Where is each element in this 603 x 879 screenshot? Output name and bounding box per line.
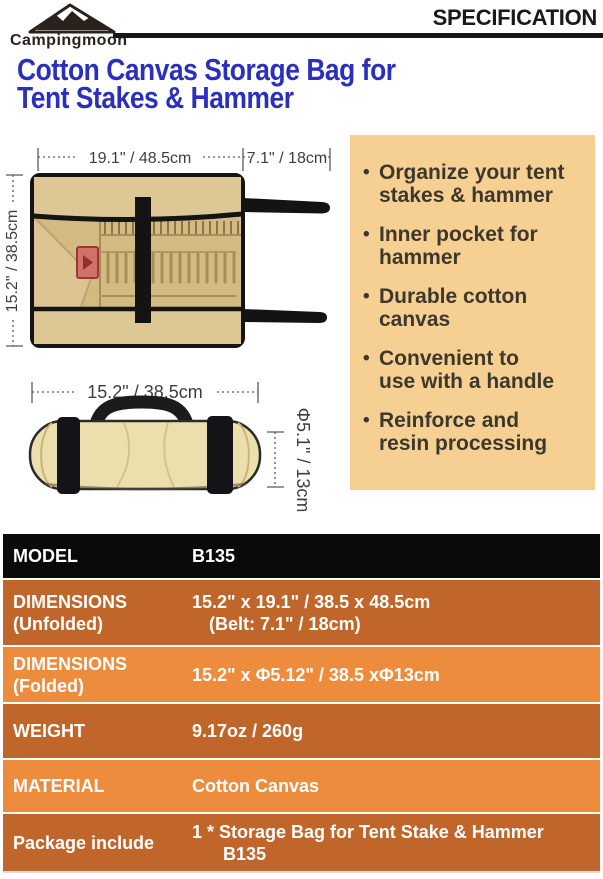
unfolded-bag-drawing xyxy=(32,175,330,346)
feature-item: • Organize your tent stakes & hammer xyxy=(363,161,589,207)
unfolded-width-label: 19.1" / 48.5cm xyxy=(89,150,192,167)
table-row-weight: WEIGHT 9.17oz / 260g xyxy=(3,704,600,758)
feature-item: • Durable cotton canvas xyxy=(363,285,589,331)
product-title: Cotton Canvas Storage Bag for Tent Stake… xyxy=(17,56,396,112)
bullet-icon: • xyxy=(363,161,379,207)
row-label-sub: (Unfolded) xyxy=(13,613,192,635)
belt-length-label: 7.1" / 18cm xyxy=(247,150,327,167)
row-label: MATERIAL xyxy=(13,775,192,797)
product-spec-page: Campingmoon SPECIFICATION Cotton Canvas … xyxy=(0,0,603,879)
header-divider xyxy=(113,33,603,38)
row-label: Package include xyxy=(13,832,192,854)
feature-text: Convenient to use with a handle xyxy=(379,347,554,393)
center-strap xyxy=(135,197,151,323)
table-row-model: MODEL B135 xyxy=(3,534,600,578)
row-value: B135 xyxy=(192,545,596,567)
row-value-line2: (Belt: 7.1" / 18cm) xyxy=(209,613,596,635)
row-value-line2: B135 xyxy=(223,843,596,865)
row-label-sub: (Folded) xyxy=(13,675,192,697)
row-value: 9.17oz / 260g xyxy=(192,720,596,742)
row-label: WEIGHT xyxy=(13,720,192,742)
feature-text: Durable cotton canvas xyxy=(379,285,527,331)
bullet-icon: • xyxy=(363,409,379,455)
row-value: 1 * Storage Bag for Tent Stake & Hammer xyxy=(192,821,596,843)
roll-strap-left xyxy=(57,417,80,494)
table-row-dimensions-unfolded: DIMENSIONS (Unfolded) 15.2" x 19.1" / 38… xyxy=(3,580,600,645)
bullet-icon: • xyxy=(363,285,379,331)
top-belt xyxy=(243,198,330,214)
feature-text: Reinforce and resin processing xyxy=(379,409,547,455)
row-label: MODEL xyxy=(13,545,192,567)
feature-text: Inner pocket for hammer xyxy=(379,223,538,269)
feature-item: • Inner pocket for hammer xyxy=(363,223,589,269)
pocket-row-large xyxy=(108,254,234,282)
feature-item: • Reinforce and resin processing xyxy=(363,409,589,455)
row-label: DIMENSIONS xyxy=(13,591,192,613)
table-row-package: Package include 1 * Storage Bag for Tent… xyxy=(3,814,600,871)
campingmoon-logo: Campingmoon xyxy=(10,2,122,48)
bullet-icon: • xyxy=(363,347,379,393)
feature-item: • Convenient to use with a handle xyxy=(363,347,589,393)
spec-table: MODEL B135 DIMENSIONS (Unfolded) 15.2" x… xyxy=(3,534,600,873)
product-title-line2: Tent Stakes & Hammer xyxy=(17,84,396,112)
unfolded-bag-figure: 19.1" / 48.5cm 7.1" / 18cm 15.2" / 38.5c… xyxy=(0,140,345,360)
table-row-dimensions-folded: DIMENSIONS (Folded) 15.2" x Φ5.12" / 38.… xyxy=(3,647,600,702)
features-panel: • Organize your tent stakes & hammer • I… xyxy=(350,135,595,490)
mountain-icon xyxy=(26,2,118,34)
folded-diameter-label: Φ5.1" / 13cm xyxy=(293,408,313,513)
feature-text: Organize your tent stakes & hammer xyxy=(379,161,565,207)
bottom-belt xyxy=(243,309,327,323)
brand-name: Campingmoon xyxy=(10,34,122,48)
folded-bag-figure: 15.2" / 38.5cm Φ5.1" / 13cm xyxy=(0,380,330,525)
table-row-material: MATERIAL Cotton Canvas xyxy=(3,760,600,812)
row-value: 15.2" x 19.1" / 38.5 x 48.5cm xyxy=(192,591,596,613)
page-title: SPECIFICATION xyxy=(433,5,597,31)
unfolded-height-label: 15.2" / 38.5cm xyxy=(4,210,21,313)
row-value: Cotton Canvas xyxy=(192,775,596,797)
folded-bag-drawing xyxy=(30,402,260,494)
row-label: DIMENSIONS xyxy=(13,653,192,675)
row-value: 15.2" x Φ5.12" / 38.5 xΦ13cm xyxy=(192,664,596,686)
roll-strap-right xyxy=(207,416,233,494)
bullet-icon: • xyxy=(363,223,379,269)
